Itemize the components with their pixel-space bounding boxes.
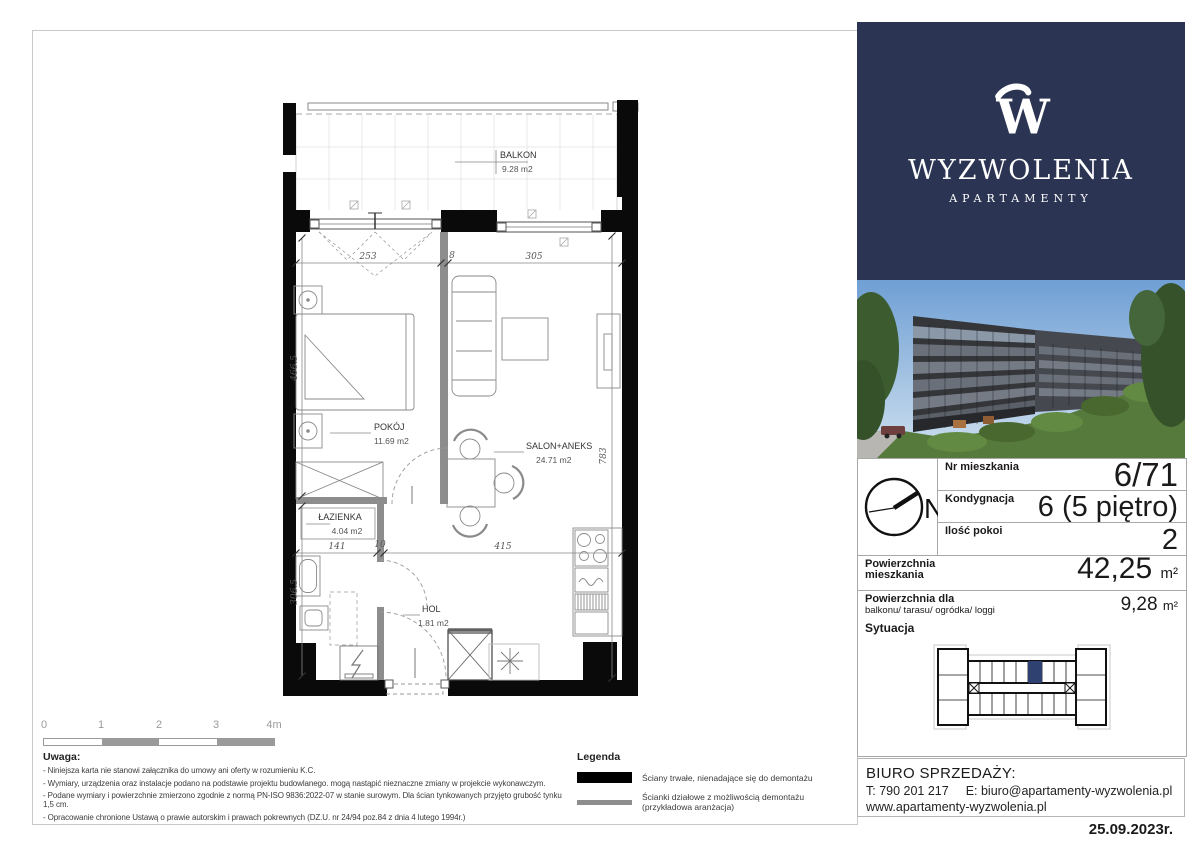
- svg-text:24.71 m2: 24.71 m2: [536, 455, 572, 465]
- note-line: - Niniejsza karta nie stanowi załącznika…: [43, 766, 568, 775]
- svg-text:11.69 m2: 11.69 m2: [374, 436, 409, 446]
- apartment-card: 253 8 305 466.5 783 141 10 415 306.5 BAL…: [0, 0, 1200, 848]
- scale-tick-3: 3: [213, 719, 219, 731]
- hall-items: [340, 630, 539, 680]
- legend-title: Legenda: [577, 751, 852, 763]
- svg-text:9.28 m2: 9.28 m2: [502, 164, 533, 174]
- bedroom-furniture: [294, 286, 414, 499]
- svg-text:4.04 m2: 4.04 m2: [332, 526, 363, 536]
- apartment-number-value: 6/71: [1114, 460, 1178, 490]
- note-line: - Opracowanie chronione Ustawą o prawie …: [43, 813, 568, 822]
- sales-office-box: BIURO SPRZEDAŻY: T: 790 201 217 E: biuro…: [857, 758, 1185, 817]
- dimension-labels: 253 8 305 466.5 783 141 10 415 306.5: [290, 251, 609, 605]
- legend-item-partition-walls: Ścianki działowe z możliwością demontażu…: [577, 792, 852, 812]
- svg-text:306.5: 306.5: [290, 579, 300, 605]
- balcony-area-label-line1: Powierzchnia dla: [865, 593, 954, 605]
- room-label-lazienka: ŁAZIENKA: [318, 512, 362, 522]
- room-count-value: 2: [1162, 525, 1178, 555]
- document-date: 25.09.2023r.: [857, 821, 1173, 838]
- brand-monogram-icon: W: [986, 82, 1056, 144]
- svg-text:10: 10: [374, 540, 386, 550]
- svg-text:8: 8: [449, 251, 455, 261]
- living-room-furniture: [447, 276, 620, 537]
- scale-tick-0: 0: [41, 719, 47, 731]
- highlighted-unit: [1028, 661, 1042, 683]
- sales-email: E: biuro@apartamenty-wyzwolenia.pl: [966, 784, 1173, 798]
- svg-text:415: 415: [493, 542, 511, 552]
- note-line: - Podane wymiary i powierzchnie zmierzon…: [43, 791, 568, 809]
- sales-phone: T: 790 201 217: [866, 784, 949, 798]
- svg-text:253: 253: [358, 252, 376, 262]
- door-swings: [380, 448, 448, 694]
- floor-value: 6 (5 piętro): [1038, 492, 1178, 522]
- brand-subtitle: APARTAMENTY: [857, 192, 1185, 205]
- area-label-line2: mieszkania: [865, 569, 924, 581]
- room-label-hol: HOL: [422, 604, 441, 614]
- solid-wall-swatch: [577, 772, 632, 783]
- kitchen-appliances: [573, 528, 622, 636]
- legend: Legenda Ściany trwałe, nienadające się d…: [577, 751, 852, 812]
- situation-section: Sytuacja: [857, 615, 1187, 757]
- room-count-label: Ilość pokoi: [938, 523, 1186, 537]
- svg-text:141: 141: [328, 542, 345, 552]
- svg-text:466.5: 466.5: [290, 355, 300, 382]
- room-label-salon: SALON+ANEKS: [526, 441, 592, 451]
- brand-logo: W WYZWOLENIA APARTAMENTY: [857, 82, 1185, 205]
- note-line: - Wymiary, urządzenia oraz instalacje po…: [43, 779, 568, 788]
- row-floor: Kondygnacja 6 (5 piętro): [938, 491, 1186, 523]
- balcony-area-value: 9,28 m²: [1121, 596, 1178, 615]
- balcony-railing: [296, 102, 638, 114]
- partition-wall-swatch: [577, 800, 632, 805]
- brand-panel: W WYZWOLENIA APARTAMENTY: [857, 22, 1185, 458]
- scale-bar: 0 1 2 3 4m: [43, 719, 279, 747]
- door-leaves: [385, 486, 449, 688]
- scale-bar-segments: [43, 738, 275, 746]
- scale-tick-2: 2: [156, 719, 162, 731]
- apartment-area-value: 42,25 m²: [1077, 555, 1178, 588]
- sales-office-title: BIURO SPRZEDAŻY:: [866, 765, 1184, 782]
- notes-title: Uwaga:: [43, 751, 568, 763]
- situation-title: Sytuacja: [858, 615, 1186, 635]
- dimension-ticks: [293, 233, 626, 682]
- notes: Uwaga: - Niniejsza karta nie stanowi zał…: [43, 751, 568, 822]
- structural-walls: [283, 100, 638, 696]
- svg-text:1.81 m2: 1.81 m2: [418, 618, 449, 628]
- compass-north-label: N: [924, 493, 938, 524]
- details-table: N Nr mieszkania 6/71 Kondygnacja 6 (5 pi…: [857, 458, 1187, 619]
- row-apartment-number: Nr mieszkania 6/71: [938, 459, 1186, 491]
- row-balcony-area: Powierzchnia dla balkonu/ tarasu/ ogródk…: [858, 591, 1186, 618]
- brand-name: WYZWOLENIA: [857, 155, 1185, 186]
- svg-text:783: 783: [599, 447, 609, 464]
- room-label-balkon: BALKON: [500, 150, 537, 160]
- room-label-pokoj: POKÓJ: [374, 422, 405, 432]
- scale-tick-1: 1: [98, 719, 104, 731]
- situation-diagram: [932, 637, 1112, 737]
- building-photo: [857, 280, 1185, 458]
- sales-website: www.apartamenty-wyzwolenia.pl: [866, 800, 1184, 814]
- svg-text:W: W: [995, 90, 1050, 144]
- floor-plan: 253 8 305 466.5 783 141 10 415 306.5 BAL…: [230, 88, 690, 720]
- compass: N: [858, 459, 938, 556]
- row-apartment-area: Powierzchnia mieszkania 42,25 m²: [858, 556, 1186, 591]
- scale-tick-4: 4m: [266, 719, 281, 731]
- svg-text:305: 305: [525, 252, 542, 262]
- balcony-tile-grid: [296, 115, 617, 210]
- legend-item-solid-walls: Ściany trwałe, nienadające się do demont…: [577, 772, 852, 783]
